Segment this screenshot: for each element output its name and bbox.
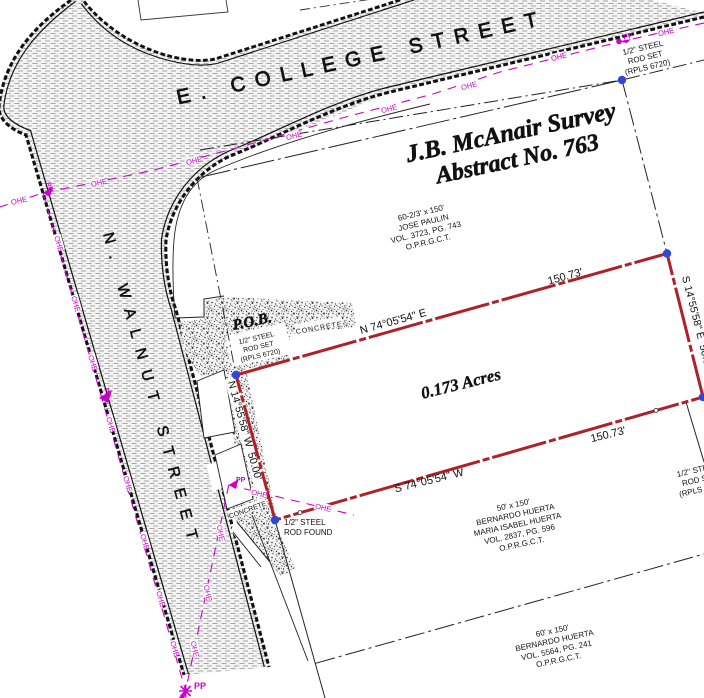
svg-text:ROD FOUND: ROD FOUND	[284, 528, 333, 537]
svg-text:1/2" STEEL: 1/2" STEEL	[284, 518, 326, 527]
svg-text:PP: PP	[194, 681, 206, 691]
svg-text:PP: PP	[236, 477, 246, 484]
